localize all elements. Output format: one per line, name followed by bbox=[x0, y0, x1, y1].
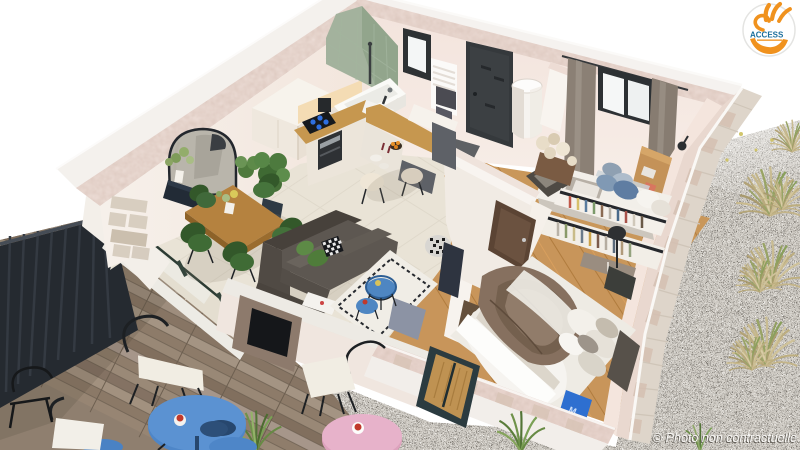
svg-text:© Photo non contractuelle: © Photo non contractuelle bbox=[653, 431, 797, 445]
svg-text:ACCESS: ACCESS bbox=[750, 31, 784, 40]
